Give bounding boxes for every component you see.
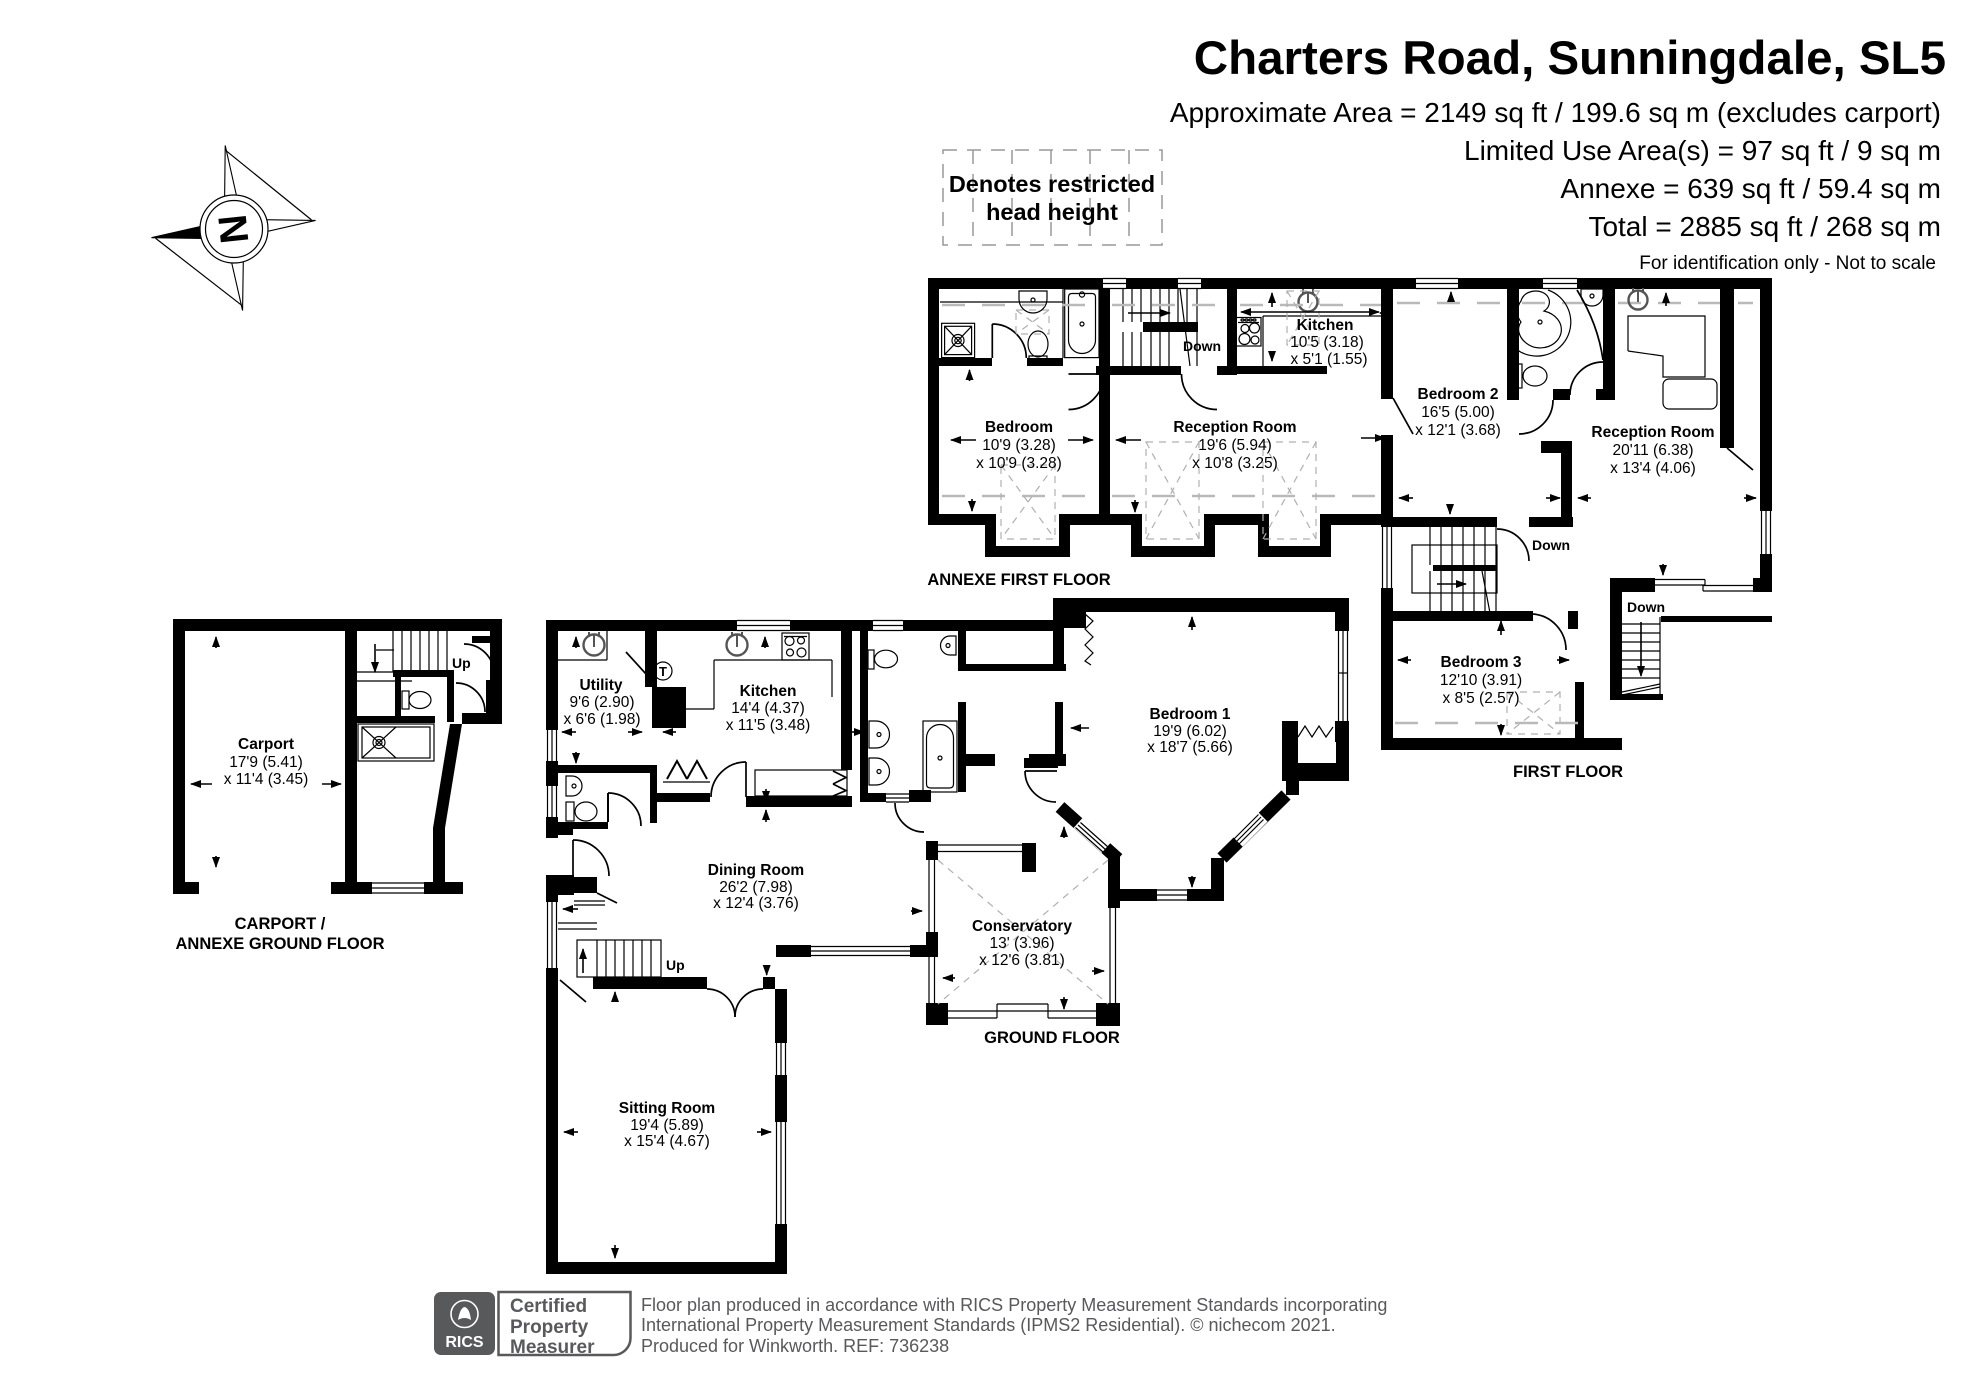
svg-text:x 8'5 (2.57): x 8'5 (2.57) (1442, 690, 1519, 707)
svg-text:x 10'8 (3.25): x 10'8 (3.25) (1192, 455, 1278, 472)
svg-text:Kitchen: Kitchen (740, 683, 797, 700)
svg-text:GROUND FLOOR: GROUND FLOOR (984, 1029, 1120, 1047)
svg-text:Conservatory: Conservatory (972, 918, 1072, 935)
svg-text:x 10'9 (3.28): x 10'9 (3.28) (976, 455, 1062, 472)
svg-text:x 12'6 (3.81): x 12'6 (3.81) (979, 952, 1065, 969)
svg-text:19'9 (6.02): 19'9 (6.02) (1153, 723, 1227, 740)
svg-text:x 13'4 (4.06): x 13'4 (4.06) (1610, 460, 1696, 477)
svg-text:x 11'4 (3.45): x 11'4 (3.45) (224, 771, 309, 788)
svg-text:Approximate Area = 2149 sq ft: Approximate Area = 2149 sq ft / 199.6 sq… (1170, 97, 1941, 128)
svg-text:Reception Room: Reception Room (1591, 424, 1714, 441)
svg-text:Utility: Utility (579, 677, 622, 694)
svg-text:20'11 (6.38): 20'11 (6.38) (1612, 442, 1693, 459)
svg-text:FIRST FLOOR: FIRST FLOOR (1513, 763, 1623, 781)
svg-text:17'9 (5.41): 17'9 (5.41) (229, 754, 303, 771)
svg-text:Property: Property (510, 1317, 589, 1338)
svg-text:Measurer: Measurer (510, 1337, 595, 1358)
svg-text:Bedroom 3: Bedroom 3 (1441, 654, 1522, 671)
svg-text:Up: Up (666, 957, 685, 973)
svg-text:x 12'1 (3.68): x 12'1 (3.68) (1415, 422, 1501, 439)
svg-text:CARPORT /: CARPORT / (235, 915, 326, 933)
svg-text:Produced for Winkworth. REF:: Produced for Winkworth. REF: 736238 (641, 1336, 949, 1356)
svg-text:Bedroom 2: Bedroom 2 (1418, 386, 1499, 403)
svg-text:T: T (659, 664, 667, 679)
svg-text:14'4 (4.37): 14'4 (4.37) (731, 700, 805, 717)
svg-text:ANNEXE FIRST FLOOR: ANNEXE FIRST FLOOR (927, 571, 1110, 589)
svg-text:International Property Measure: International Property Measurement Stand… (641, 1315, 1336, 1335)
svg-text:RICS: RICS (445, 1334, 484, 1351)
svg-text:For identification only - Not: For identification only - Not to scale (1639, 253, 1936, 274)
svg-text:19'4 (5.89): 19'4 (5.89) (630, 1117, 704, 1134)
svg-text:9'6 (2.90): 9'6 (2.90) (570, 694, 635, 711)
svg-text:x 6'6 (1.98): x 6'6 (1.98) (563, 711, 640, 728)
svg-text:Denotes restricted: Denotes restricted (949, 171, 1155, 197)
svg-text:Certified: Certified (510, 1296, 587, 1317)
svg-text:Dining Room: Dining Room (708, 862, 804, 879)
svg-text:N: N (211, 212, 258, 245)
svg-text:ANNEXE GROUND FLOOR: ANNEXE GROUND FLOOR (175, 935, 384, 953)
svg-text:Bedroom: Bedroom (985, 419, 1053, 436)
svg-text:Limited Use Area(s) = 97 sq ft: Limited Use Area(s) = 97 sq ft / 9 sq m (1464, 135, 1941, 166)
svg-text:x 5'1 (1.55): x 5'1 (1.55) (1290, 351, 1367, 368)
svg-text:12'10 (3.91): 12'10 (3.91) (1440, 672, 1522, 689)
svg-text:10'9 (3.28): 10'9 (3.28) (982, 437, 1056, 454)
svg-text:Down: Down (1627, 599, 1665, 615)
svg-text:x 18'7 (5.66): x 18'7 (5.66) (1147, 739, 1233, 756)
svg-text:26'2 (7.98): 26'2 (7.98) (719, 879, 793, 896)
svg-text:Down: Down (1532, 537, 1570, 553)
svg-text:Charters Road, Sunningdale, SL: Charters Road, Sunningdale, SL5 (1194, 32, 1946, 85)
svg-text:head height: head height (986, 199, 1118, 225)
svg-text:Down: Down (1183, 338, 1221, 354)
svg-text:Sitting Room: Sitting Room (619, 1100, 715, 1117)
svg-text:x 11'5 (3.48): x 11'5 (3.48) (726, 717, 811, 734)
svg-text:Total = 2885 sq ft / 268 sq m: Total = 2885 sq ft / 268 sq m (1588, 211, 1941, 242)
svg-text:Kitchen: Kitchen (1297, 317, 1354, 334)
svg-text:x 12'4 (3.76): x 12'4 (3.76) (713, 895, 799, 912)
svg-text:16'5 (5.00): 16'5 (5.00) (1421, 404, 1495, 421)
svg-text:Annexe = 639 sq ft / 59.4 sq m: Annexe = 639 sq ft / 59.4 sq m (1560, 173, 1941, 204)
svg-text:Carport: Carport (238, 736, 294, 753)
svg-text:13' (3.96): 13' (3.96) (990, 935, 1055, 952)
svg-text:x 15'4 (4.67): x 15'4 (4.67) (624, 1133, 710, 1150)
svg-text:Up: Up (452, 655, 471, 671)
svg-text:10'5 (3.18): 10'5 (3.18) (1290, 334, 1364, 351)
svg-text:19'6 (5.94): 19'6 (5.94) (1198, 437, 1272, 454)
svg-text:Reception Room: Reception Room (1173, 419, 1296, 436)
svg-text:Floor plan produced in accorda: Floor plan produced in accordance with R… (641, 1295, 1387, 1315)
svg-text:Bedroom 1: Bedroom 1 (1150, 706, 1231, 723)
